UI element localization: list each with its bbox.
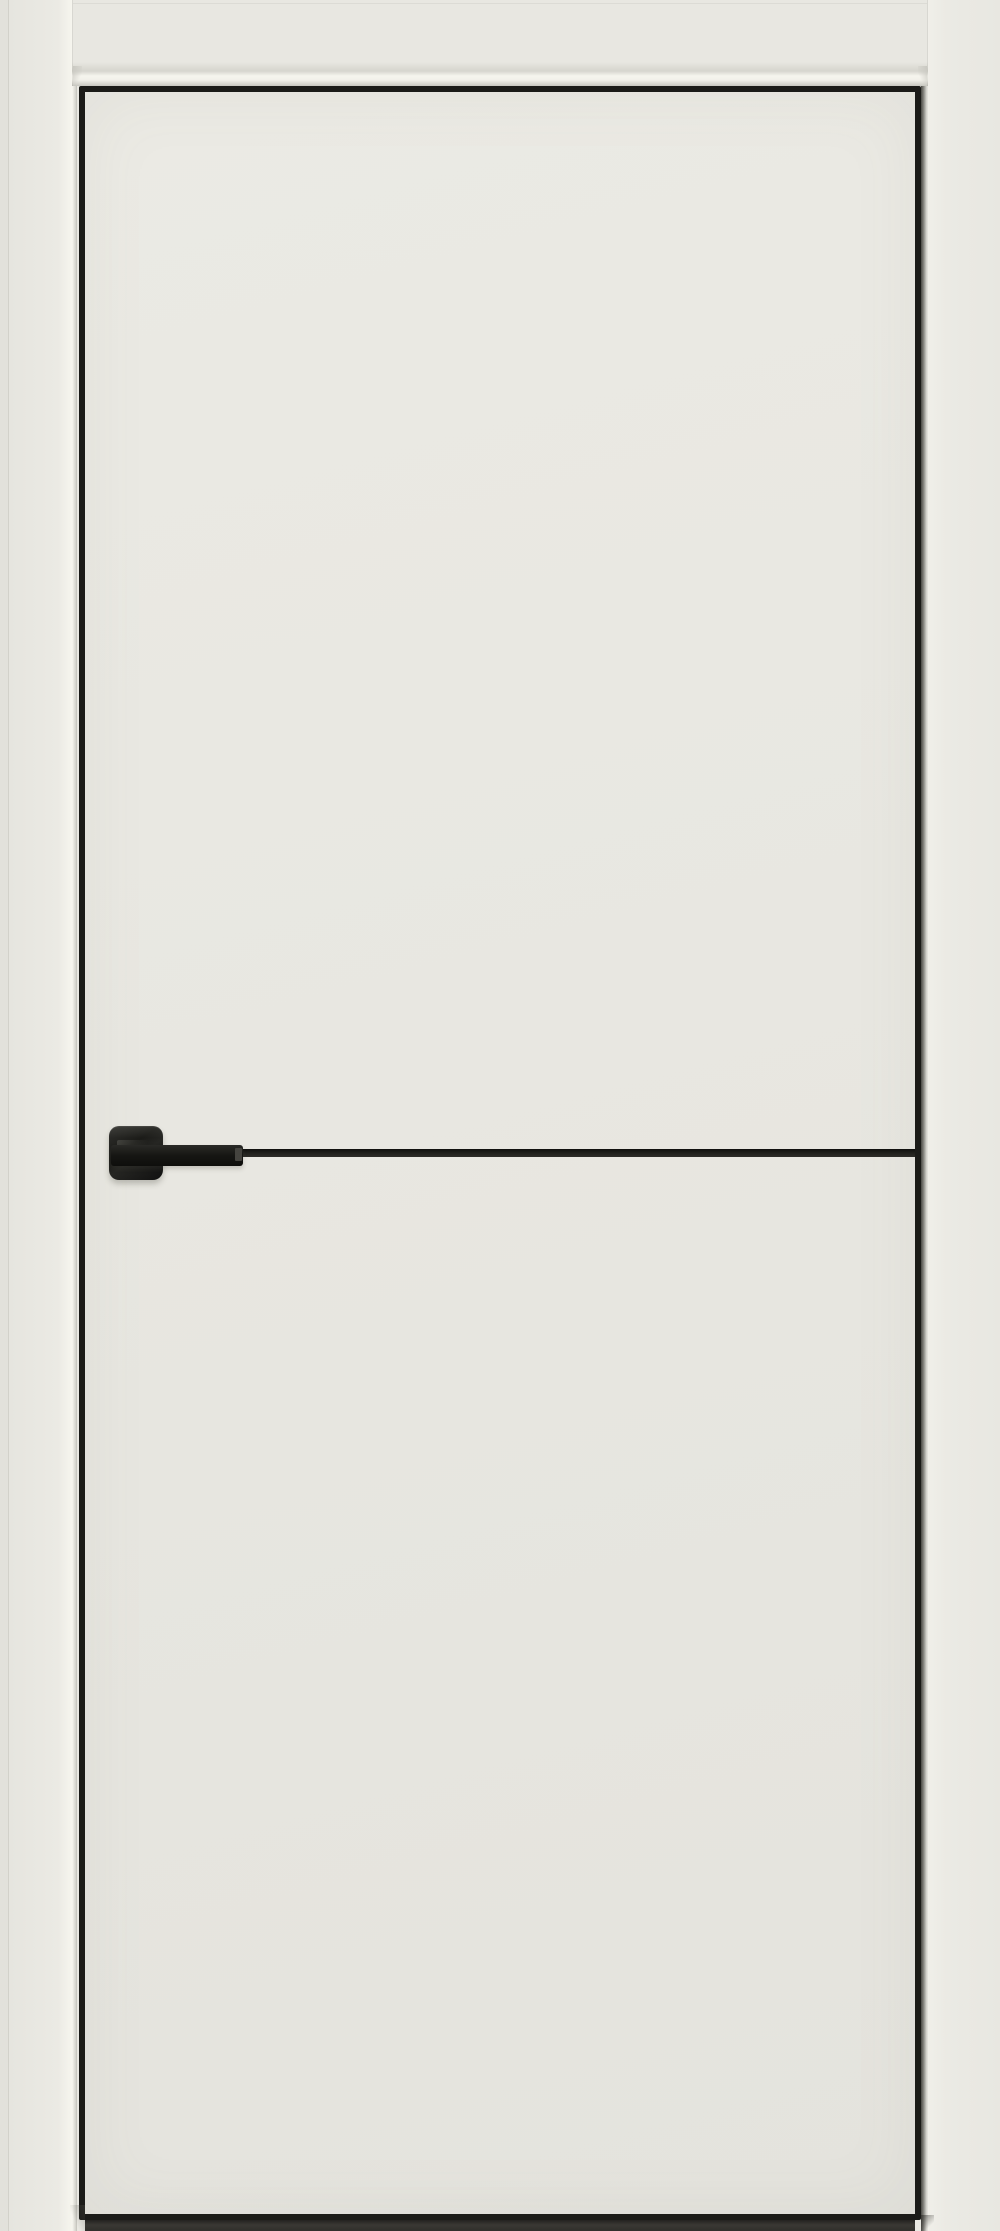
bottom-left-corner-shadow	[70, 2205, 85, 2231]
floor-gap-shadow	[85, 2220, 915, 2231]
door-casing-head	[72, 0, 928, 86]
door-casing-right	[928, 0, 1000, 2231]
door-handle-lever	[111, 1145, 243, 1166]
door-casing-left	[9, 0, 77, 2231]
head-casing-miter-right	[918, 66, 927, 86]
door-reveal-shadow	[921, 86, 928, 2231]
lever-endcap-highlight	[235, 1148, 242, 1161]
head-casing-top-seam	[73, 3, 927, 4]
wall-strip-left	[0, 0, 9, 2231]
head-casing-miter-left	[73, 66, 82, 86]
door-molding-insert	[243, 1149, 915, 1157]
door-product-photo	[0, 0, 1000, 2231]
bottom-right-corner-shadow	[921, 2215, 934, 2231]
